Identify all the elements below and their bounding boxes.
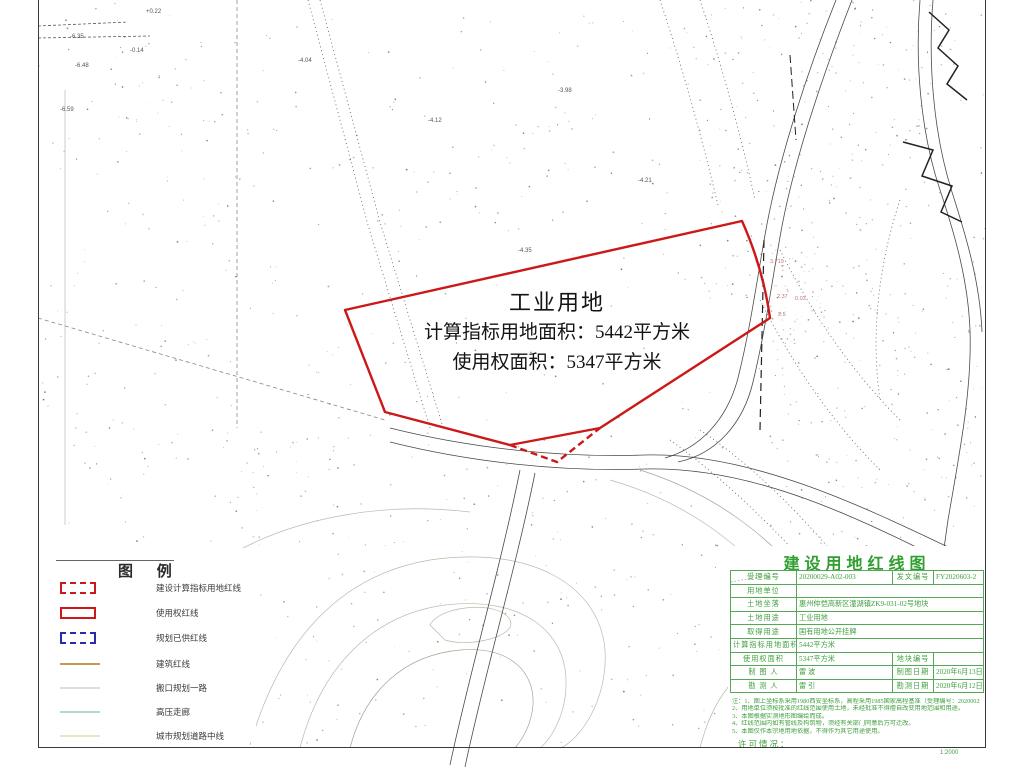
table-row: 勘 测 人 雷 引 勘测日期 2020年6月12日	[731, 679, 984, 693]
legend-item-label: 建筑红线	[156, 658, 190, 670]
obtain-value: 国有用地公开挂牌	[797, 625, 984, 639]
note-line: 3、本图根据实测地形图编绘而成。	[732, 713, 980, 720]
issue-no-label: 发文编号	[893, 571, 934, 585]
legend-item: 搬口规划一路	[60, 680, 100, 696]
parcel-no-label: 地块编号	[893, 652, 934, 666]
parcel-landuse-title: 工业用地	[367, 288, 747, 318]
legend-item: 城市规划道路中线	[60, 728, 100, 744]
land-redline-drawing: 工业用地 计算指标用地面积：5442平方米 使用权面积：5347平方米 -6.3…	[0, 0, 1024, 768]
unit-label: 用地单位	[731, 584, 797, 598]
permit-status-label: 许可情况：	[738, 738, 791, 750]
legend-item: 使用权红线	[60, 605, 96, 621]
table-row: 取得用途 国有用地公开挂牌	[731, 625, 984, 639]
table-row: 土地坐落 惠州仲恺高新区潼湖镇ZK9-031-02号地块	[731, 598, 984, 612]
red-survey-note: 2.5	[778, 312, 786, 318]
table-row: 使用权面积 5347平方米 地块编号	[731, 652, 984, 666]
note-line: 5、本图仅作本宗地用地依据，不得作为其它用途使用。	[732, 728, 980, 735]
legend-item-label: 使用权红线	[156, 607, 199, 619]
elevation-label: -3.98	[558, 88, 572, 94]
unit-value	[797, 584, 984, 598]
boundary-marks	[760, 12, 967, 430]
note-line: 4、红线范围内如有管线及构筑物，须经有关部门同意后方可迁改。	[732, 720, 980, 727]
red-solid-rect-symbol	[60, 607, 96, 619]
surveyor-value: 雷 引	[797, 679, 893, 693]
scale-label: 1:2000	[940, 750, 958, 756]
issue-no-value: FY2020603-2	[934, 571, 984, 585]
calc-area-value: 5442平方米	[797, 638, 984, 652]
sheet-right-border	[985, 0, 986, 747]
sheet-bottom-border	[38, 747, 986, 748]
location-value: 惠州仲恺高新区潼湖镇ZK9-031-02号地块	[797, 598, 984, 612]
draft-date-label: 制图日期	[893, 666, 934, 680]
table-row: 制 图 人 雷 波 制图日期 2020年6月13日	[731, 666, 984, 680]
legend-item: 建筑红线	[60, 656, 100, 672]
table-row: 用地单位	[731, 584, 984, 598]
title-block: 建设用地红线图 受理编号 20200029-A02-003 发文编号 FY202…	[728, 546, 986, 747]
legend-item-label: 规划已供红线	[156, 632, 207, 644]
elevation-label: -4.04	[298, 58, 312, 64]
obtain-label: 取得用途	[731, 625, 797, 639]
elevation-label: -4.21	[638, 178, 652, 184]
elevation-label: -0.14	[130, 48, 144, 54]
elevation-label: -6.48	[75, 63, 89, 69]
legend-item-label: 高压走廊	[156, 706, 190, 718]
gray-line-symbol	[60, 687, 100, 689]
note-line: 2、用地单位须按批准的红线范围使用土地，未经批准不得擅自改变用地范围和用途。	[732, 705, 980, 712]
legend-item-label: 搬口规划一路	[156, 682, 207, 694]
elevation-label: +0.22	[146, 9, 161, 15]
cyan-line-symbol	[60, 711, 100, 713]
calc-indicator-redline	[510, 428, 600, 462]
survey-date-label: 勘测日期	[893, 679, 934, 693]
surveyor-label: 勘 测 人	[731, 679, 797, 693]
red-survey-note: 0.03	[795, 296, 806, 302]
elevation-label: -6.35	[70, 34, 84, 40]
yellow-line-symbol	[60, 735, 100, 737]
legend-panel: 图 例 建设计算指标用地红线 使用权红线 规划已供红线 建筑红线 搬口规划一路 …	[38, 548, 256, 742]
table-row: 土地用途 工业用地	[731, 611, 984, 625]
orange-line-symbol	[60, 663, 100, 665]
drafter-label: 制 图 人	[731, 666, 797, 680]
parcel-calc-area: 计算指标用地面积：5442平方米	[367, 318, 747, 348]
draft-date-value: 2020年6月13日	[934, 666, 984, 680]
parcel-no-value	[934, 652, 984, 666]
landuse-value: 工业用地	[797, 611, 984, 625]
red-survey-note: 2.37	[777, 294, 788, 300]
calc-area-label: 计算指标用地面积	[731, 638, 797, 652]
legend-item: 建设计算指标用地红线	[60, 580, 96, 596]
note-line: 注：1、图上坐标系采用1980西安坐标系，高程采用1985国家高程基准（受理编号…	[732, 698, 980, 705]
title-block-notes: 注：1、图上坐标系采用1980西安坐标系，高程采用1985国家高程基准（受理编号…	[732, 698, 980, 735]
red-dashed-rect-symbol	[60, 582, 96, 594]
table-row: 计算指标用地面积 5442平方米	[731, 638, 984, 652]
elevation-label: -4.12	[428, 118, 442, 124]
drafter-value: 雷 波	[797, 666, 893, 680]
elevation-label: -4.35	[518, 248, 532, 254]
right-area-value: 5347平方米	[797, 652, 893, 666]
accept-no-value: 20200029-A02-003	[797, 571, 893, 585]
location-label: 土地坐落	[731, 598, 797, 612]
survey-date-value: 2020年6月12日	[934, 679, 984, 693]
legend-title: 图 例	[118, 560, 182, 581]
landuse-label: 土地用途	[731, 611, 797, 625]
elevation-label: -6.59	[60, 107, 74, 113]
legend-item: 规划已供红线	[60, 630, 96, 646]
legend-item-label: 建设计算指标用地红线	[156, 582, 241, 594]
parcel-right-area: 使用权面积：5347平方米	[367, 348, 747, 378]
legend-item: 高压走廊	[60, 704, 100, 720]
title-block-table: 受理编号 20200029-A02-003 发文编号 FY2020603-2 用…	[730, 570, 984, 693]
blue-dashed-rect-symbol	[60, 632, 96, 644]
legend-item-label: 城市规划道路中线	[156, 730, 224, 742]
legend-divider-line	[56, 560, 174, 561]
right-area-label: 使用权面积	[731, 652, 797, 666]
red-survey-note: 3.719	[770, 259, 784, 265]
parcel-annotation: 工业用地 计算指标用地面积：5442平方米 使用权面积：5347平方米	[367, 288, 747, 378]
sheet-left-border	[38, 0, 39, 747]
